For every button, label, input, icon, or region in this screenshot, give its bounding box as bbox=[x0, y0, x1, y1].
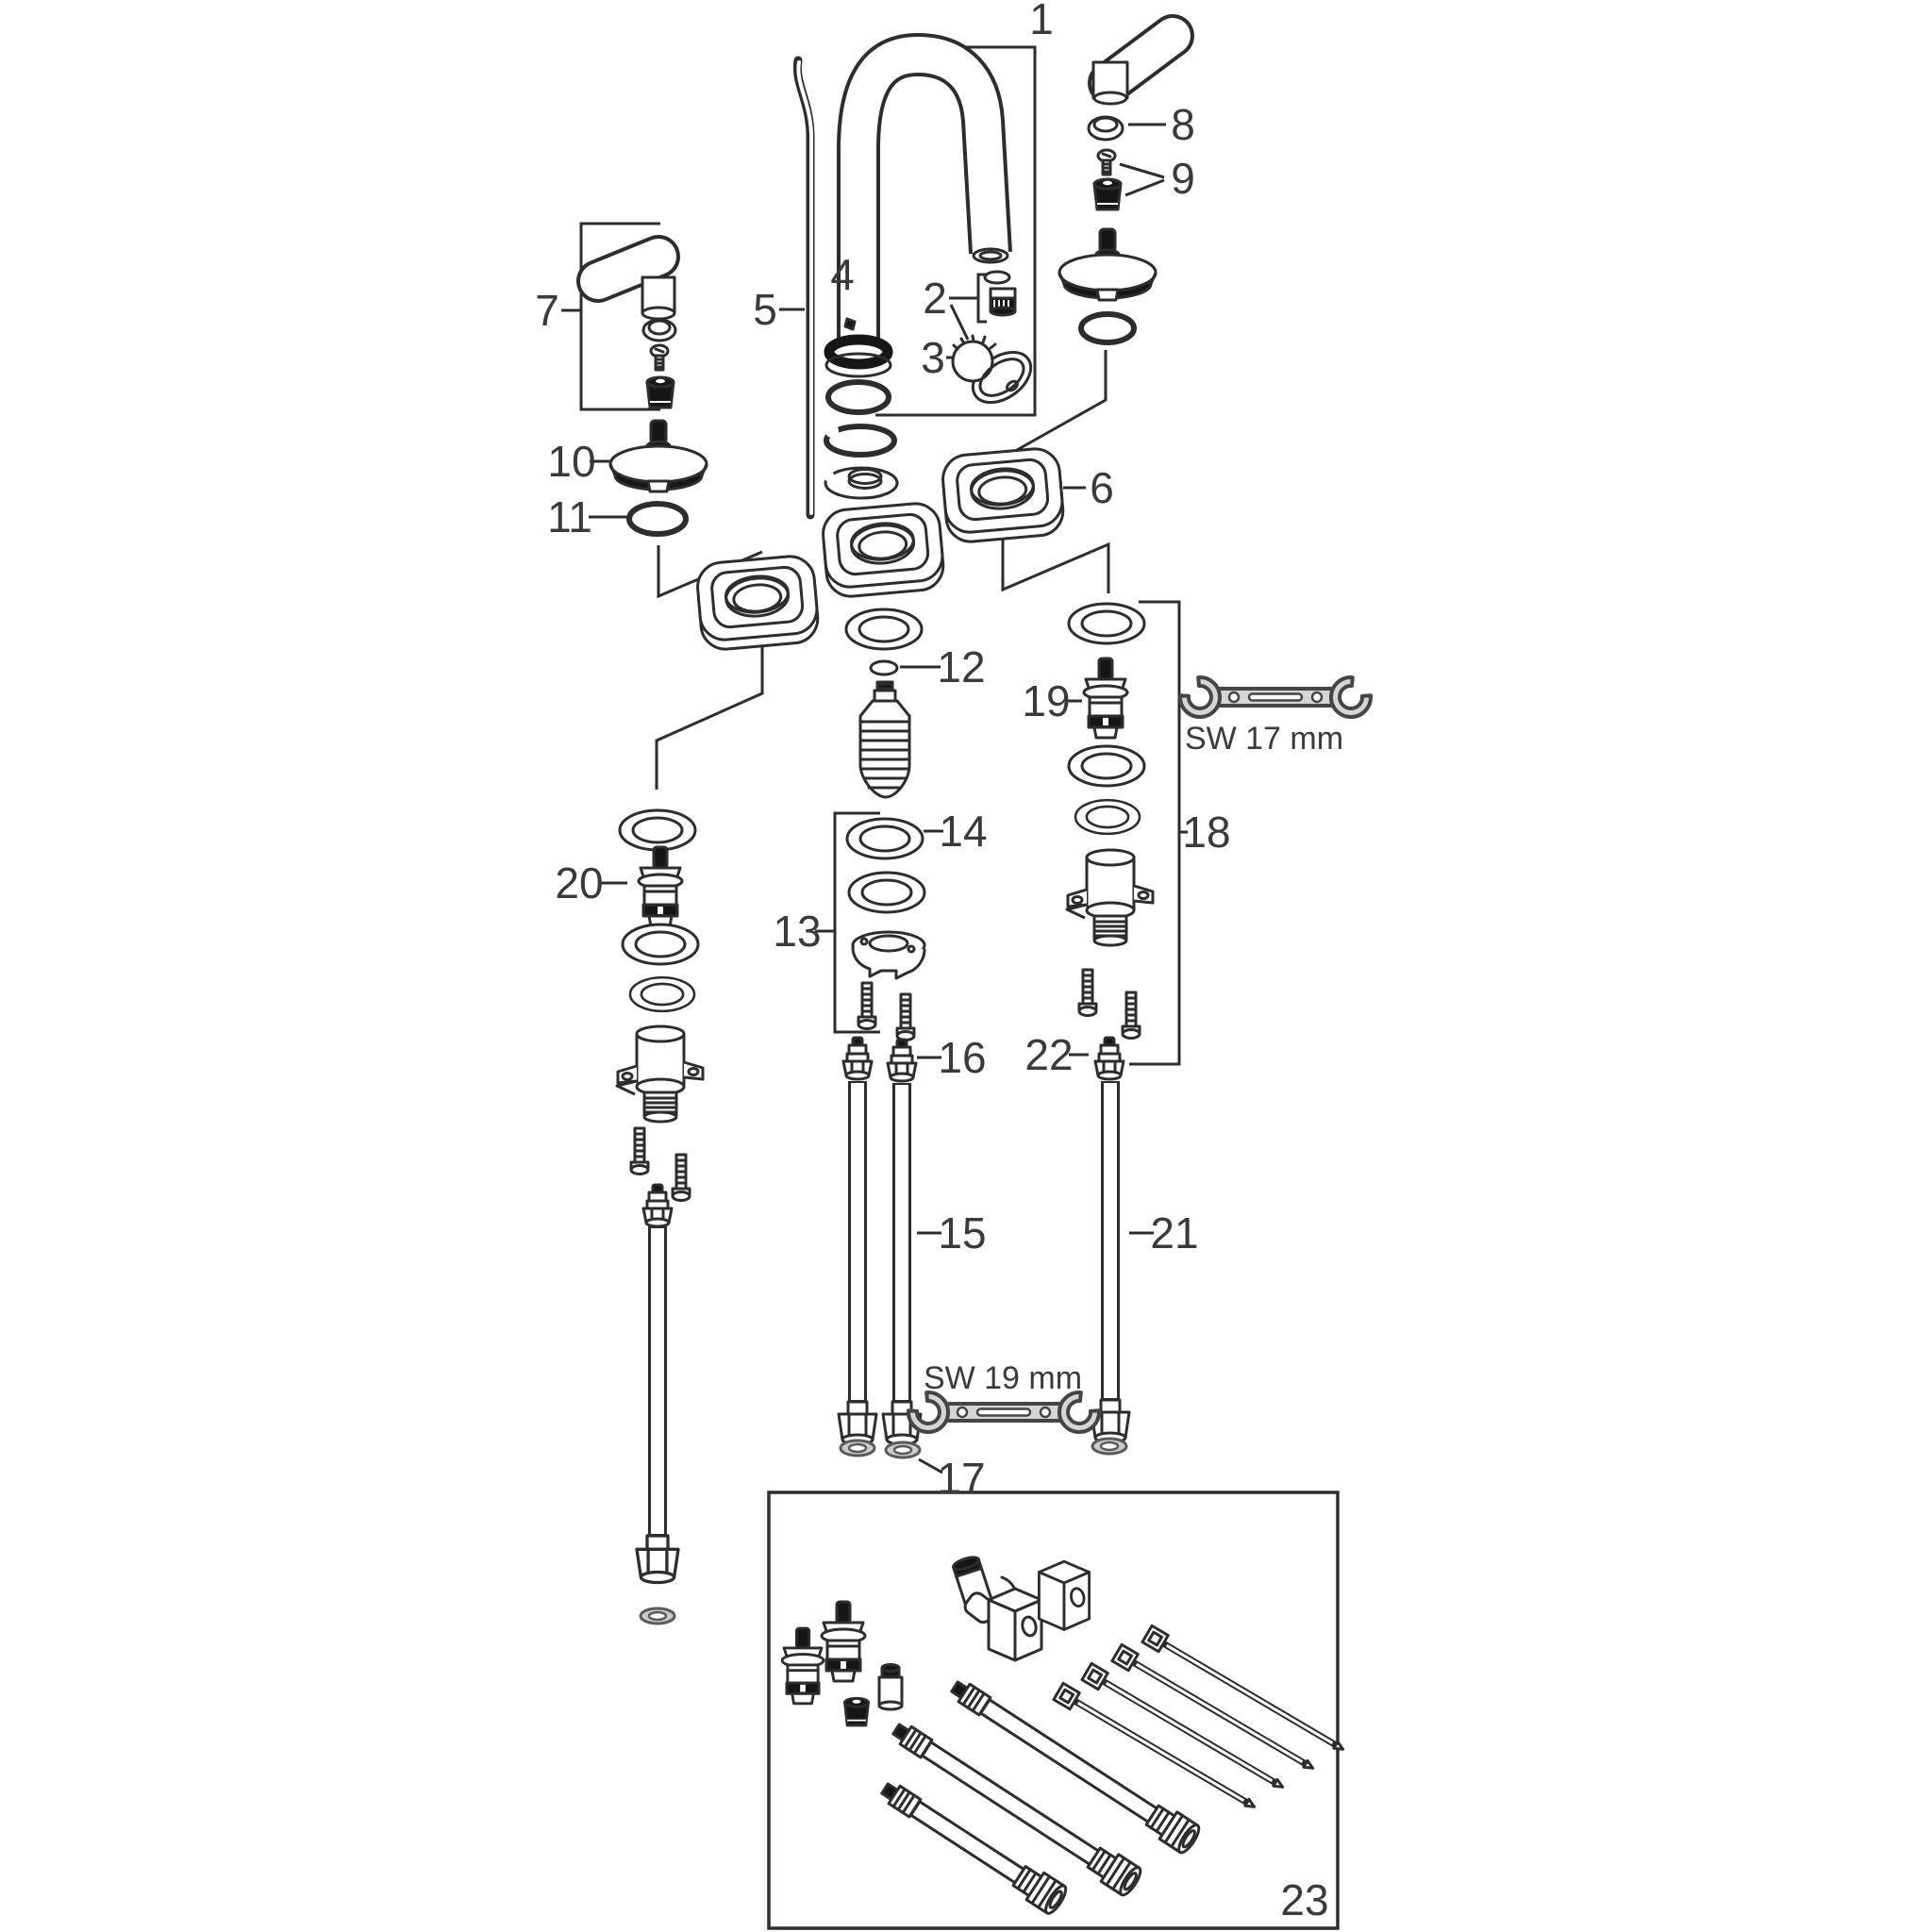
hose-nut bbox=[637, 1536, 678, 1583]
callout-8: 8 bbox=[1171, 100, 1195, 149]
callout-2: 2 bbox=[923, 274, 947, 323]
kit-bushing bbox=[844, 1698, 868, 1725]
kit-block bbox=[1039, 1561, 1089, 1629]
callout-14: 14 bbox=[939, 807, 987, 856]
fixing-screw bbox=[1123, 992, 1140, 1039]
fixing-screw bbox=[897, 994, 914, 1041]
slotted-washer bbox=[823, 468, 897, 498]
callout-16: 16 bbox=[938, 1033, 986, 1082]
left-valve-body bbox=[617, 1026, 703, 1122]
left-handle-screw bbox=[651, 345, 668, 370]
callout-6: 6 bbox=[1090, 463, 1114, 512]
washer bbox=[623, 924, 698, 964]
spout-base-seal bbox=[829, 340, 888, 364]
fixing-screw bbox=[673, 1155, 690, 1201]
o-ring-part-12 bbox=[871, 661, 897, 675]
leader-escutcheon-right-bottom bbox=[1003, 540, 1108, 593]
aerator-o-ring bbox=[985, 272, 1009, 283]
mounting-nut bbox=[853, 932, 924, 978]
callout-21: 21 bbox=[1150, 1208, 1198, 1257]
escutcheon-right-part-6 bbox=[941, 447, 1065, 543]
faucet-exploded-diagram: 1 2 3 4 5 6 7 8 9 10 11 12 13 14 15 16 1… bbox=[0, 0, 1932, 1932]
washer bbox=[846, 609, 922, 649]
hose-connector-part-16 bbox=[888, 1040, 916, 1081]
right-handle-assembly bbox=[1059, 36, 1173, 342]
drain-rod bbox=[797, 60, 811, 515]
left-handle-ring bbox=[643, 320, 675, 341]
washer bbox=[849, 873, 924, 912]
right-o-ring bbox=[1081, 314, 1134, 342]
screw-part-9 bbox=[1098, 150, 1115, 175]
kit-block bbox=[989, 1589, 1041, 1660]
right-valve-body-part-18 bbox=[1067, 850, 1153, 945]
hose-connector-part-16 bbox=[843, 1038, 872, 1079]
bellows-part-13 bbox=[860, 682, 909, 797]
washer bbox=[1069, 604, 1144, 643]
escutcheon-center bbox=[821, 502, 945, 598]
callout-1: 1 bbox=[1029, 0, 1054, 43]
cartridge-part-10 bbox=[610, 421, 707, 491]
washer bbox=[1069, 746, 1144, 786]
left-handle-assembly bbox=[598, 257, 707, 534]
escutcheon-left bbox=[695, 555, 820, 651]
seal-washer bbox=[641, 1608, 675, 1624]
washer-part-14 bbox=[847, 819, 923, 858]
wrench-size-label-sw19: SW 19 mm bbox=[924, 1360, 1082, 1396]
set-screw-part-4 bbox=[845, 319, 855, 329]
wrench-size-label-sw17: SW 17 mm bbox=[1185, 721, 1343, 757]
aerator-insert bbox=[991, 289, 1015, 315]
right-handle-cartridge bbox=[1059, 229, 1156, 300]
aerator-housing bbox=[953, 336, 1040, 413]
callout-3: 3 bbox=[921, 333, 945, 382]
washer bbox=[630, 977, 694, 1011]
o-ring-part-11 bbox=[629, 504, 686, 534]
callout-12: 12 bbox=[937, 642, 985, 691]
spout-o-ring bbox=[828, 382, 889, 412]
bushing-part-9 bbox=[1094, 179, 1121, 209]
ring-part-8 bbox=[1089, 117, 1123, 140]
callout-4: 4 bbox=[830, 250, 855, 299]
seal-washer-part-17 bbox=[886, 1442, 920, 1457]
right-valve-column bbox=[1067, 604, 1153, 1454]
leader-part-2 bbox=[949, 275, 987, 340]
callout-10: 10 bbox=[547, 437, 595, 486]
fixing-screw bbox=[858, 983, 875, 1029]
callout-23: 23 bbox=[1280, 1875, 1328, 1924]
left-valve-column bbox=[617, 810, 703, 1624]
callout-7: 7 bbox=[535, 286, 559, 335]
kit-adapter bbox=[879, 1665, 902, 1710]
cartridge-part-19 bbox=[1084, 658, 1127, 738]
callout-17: 17 bbox=[937, 1454, 985, 1503]
exploded-diagram-page: 1 2 3 4 5 6 7 8 9 10 11 12 13 14 15 16 1… bbox=[0, 0, 1932, 1932]
seal-washer-part-17 bbox=[841, 1441, 874, 1456]
left-handle-bushing bbox=[647, 377, 674, 408]
hose-nut bbox=[839, 1402, 876, 1444]
callout-13: 13 bbox=[773, 907, 821, 956]
callout-19: 19 bbox=[1022, 676, 1070, 725]
seal-washer bbox=[1092, 1439, 1126, 1454]
service-kit-box bbox=[769, 1492, 1348, 1928]
bracket-part-18 bbox=[1129, 602, 1188, 1064]
hose-connector-part-22 bbox=[1095, 1038, 1124, 1079]
callout-22: 22 bbox=[1024, 1030, 1073, 1079]
leader-part-9 bbox=[1120, 164, 1164, 195]
hose-connector bbox=[643, 1185, 672, 1226]
washer bbox=[1075, 800, 1140, 834]
wrench-sw17-illustration bbox=[1180, 677, 1371, 717]
callout-5: 5 bbox=[753, 285, 777, 334]
callout-11: 11 bbox=[547, 492, 592, 541]
wrench-sw19-illustration bbox=[908, 1392, 1099, 1432]
callout-9: 9 bbox=[1171, 154, 1195, 203]
callout-15: 15 bbox=[938, 1208, 986, 1257]
washer bbox=[620, 810, 695, 850]
fixing-screw bbox=[1079, 970, 1096, 1016]
split-washer bbox=[825, 425, 894, 455]
cartridge-part-20 bbox=[639, 847, 682, 926]
fixing-screw bbox=[631, 1128, 648, 1174]
callout-18: 18 bbox=[1182, 808, 1230, 857]
callout-20: 20 bbox=[555, 858, 603, 908]
